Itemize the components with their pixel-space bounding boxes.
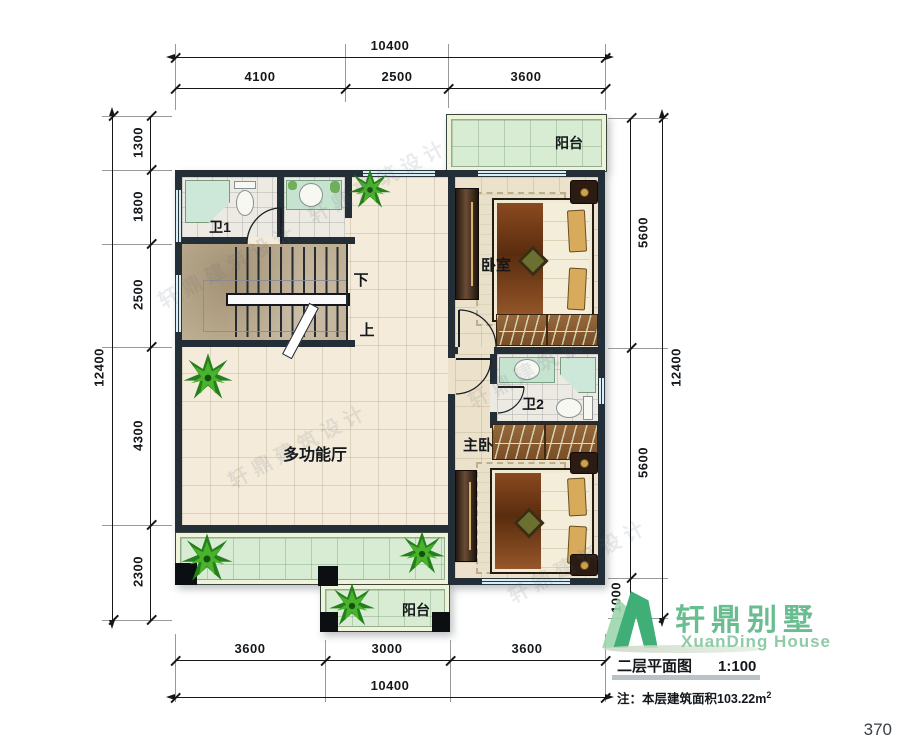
dimension-line	[662, 118, 663, 618]
dim-value: 12400	[670, 333, 683, 403]
dim-value: 5600	[637, 198, 650, 268]
extension-line	[175, 634, 176, 702]
dim-value: 2500	[362, 70, 432, 83]
extension-line	[175, 44, 176, 110]
floor-plan-page: 阳台 阳台	[0, 0, 900, 750]
page-number: 370	[842, 720, 892, 740]
note-superscript: 2	[766, 690, 771, 700]
dimension-line	[630, 118, 631, 618]
dim-value: 3600	[492, 642, 562, 655]
dimension-line: 4100 2500 3600	[175, 88, 605, 89]
dim-value: 1800	[132, 172, 145, 242]
dim-value: 4100	[225, 70, 295, 83]
extension-line	[345, 44, 346, 102]
area-note: 注：本层建筑面积103.22m2	[617, 688, 771, 707]
brand-name-en: XuanDing House	[681, 632, 831, 652]
dimension-line: 10400	[175, 697, 605, 698]
dim-value: 5600	[637, 428, 650, 498]
extension-line	[325, 640, 326, 702]
extension-line	[448, 44, 449, 108]
dimension-line	[112, 116, 113, 620]
extension-line	[608, 348, 668, 349]
drawing-title: 二层平面图	[617, 658, 692, 675]
note-prefix: 注：	[617, 692, 642, 706]
title-divider	[612, 675, 760, 680]
dim-value: 3600	[491, 70, 561, 83]
drawing-scale: 1:100	[718, 658, 756, 675]
dimension-line: 10400	[175, 57, 605, 58]
drawing-title-row: 二层平面图1:100	[617, 655, 756, 676]
extension-line	[450, 640, 451, 702]
dimension-line: 3600 3000 3600	[175, 660, 605, 661]
dim-value: 2300	[132, 537, 145, 607]
dim-value: 4300	[132, 401, 145, 471]
dim-value: 3000	[352, 642, 422, 655]
dim-value: 12400	[93, 333, 106, 403]
dim-value: 1300	[132, 108, 145, 178]
dim-value: 2500	[132, 260, 145, 330]
extension-line	[608, 118, 668, 119]
dim-value: 10400	[355, 679, 425, 692]
dim-value: 10400	[355, 39, 425, 52]
dim-value: 3600	[215, 642, 285, 655]
dimension-line	[150, 116, 151, 620]
xuanding-logo-icon	[600, 588, 666, 652]
note-body: 本层建筑面积103.22m	[642, 692, 766, 706]
